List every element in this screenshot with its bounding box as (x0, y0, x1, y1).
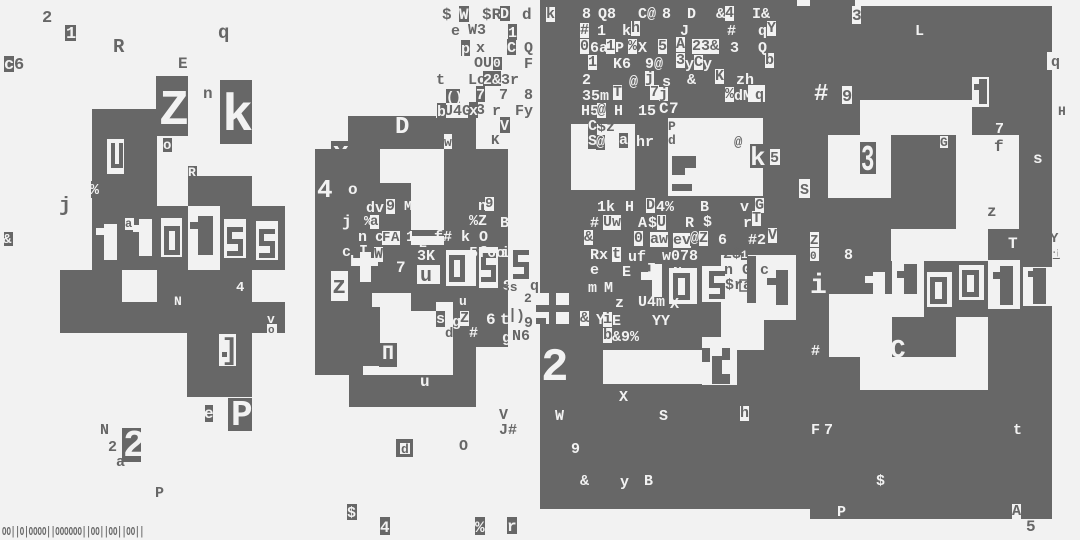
svg-text:k: k (222, 87, 253, 146)
svg-text:W3: W3 (468, 22, 486, 39)
svg-text:b: b (765, 52, 774, 69)
svg-text:i: i (501, 245, 510, 262)
svg-text:e: e (590, 262, 599, 279)
svg-text:E: E (612, 313, 621, 330)
svg-text:2: 2 (123, 425, 146, 468)
svg-text:u: u (420, 265, 432, 288)
svg-text:c: c (4, 56, 14, 75)
svg-text:8: 8 (662, 6, 671, 23)
svg-text:s: s (436, 311, 445, 328)
svg-text:j: j (342, 213, 352, 231)
svg-text:P: P (837, 504, 846, 521)
svg-text:u: u (459, 294, 467, 309)
svg-text:3: 3 (676, 52, 685, 69)
svg-text:7: 7 (650, 84, 659, 101)
svg-text:6: 6 (14, 56, 24, 75)
svg-text:&: & (710, 38, 719, 55)
svg-text:C: C (659, 100, 669, 118)
svg-text:5: 5 (770, 150, 779, 167)
svg-text:H: H (1058, 104, 1066, 119)
svg-text:F: F (811, 422, 820, 439)
svg-text:e: e (673, 232, 682, 249)
svg-text:F: F (382, 230, 390, 246)
svg-text:A: A (391, 230, 400, 246)
svg-text:N6: N6 (512, 328, 530, 345)
svg-text:u: u (420, 373, 430, 391)
svg-text:C: C (890, 335, 906, 365)
svg-text:r: r (743, 215, 752, 232)
svg-text:g: g (502, 330, 511, 347)
svg-text:@: @ (629, 74, 638, 91)
svg-text:a: a (650, 231, 659, 248)
svg-text:h: h (740, 405, 749, 422)
svg-text:d: d (522, 6, 532, 24)
svg-text:X: X (670, 296, 679, 313)
svg-text:P: P (155, 485, 164, 502)
svg-text:7: 7 (499, 87, 508, 104)
svg-text:V: V (500, 118, 509, 135)
svg-text:Z: Z (810, 233, 818, 249)
svg-text:D: D (500, 6, 509, 23)
svg-text:w: w (659, 231, 668, 248)
svg-text:OU: OU (474, 55, 492, 72)
svg-text:T: T (1008, 235, 1018, 253)
svg-text:P: P (615, 40, 624, 57)
svg-text:1: 1 (66, 25, 76, 44)
svg-text:j: j (59, 195, 71, 218)
svg-text:E: E (622, 264, 631, 281)
svg-text:3: 3 (861, 140, 874, 181)
svg-text:#: # (727, 23, 736, 40)
svg-text:i: i (810, 271, 827, 302)
svg-text:d: d (668, 133, 676, 148)
svg-text:7: 7 (669, 100, 679, 118)
svg-text:&: & (584, 229, 593, 246)
svg-text:&: & (3, 232, 12, 248)
svg-text:y: y (620, 474, 629, 491)
svg-text:A: A (1012, 503, 1021, 520)
svg-text:q: q (218, 22, 229, 44)
svg-text:X: X (619, 389, 628, 406)
svg-text:#: # (811, 343, 820, 360)
svg-text:@: @ (596, 134, 605, 151)
svg-text:B: B (644, 473, 653, 490)
svg-text:4: 4 (317, 175, 333, 205)
svg-text:T: T (613, 84, 622, 101)
svg-text:W: W (555, 408, 564, 425)
svg-text:F: F (524, 56, 533, 73)
svg-text:15: 15 (638, 103, 656, 120)
svg-text:2: 2 (582, 72, 591, 89)
svg-text:9: 9 (571, 441, 580, 458)
svg-text:d: d (401, 442, 409, 457)
svg-text:U: U (603, 214, 612, 231)
svg-text:@: @ (734, 135, 743, 151)
svg-text:Z: Z (159, 83, 189, 140)
svg-text:YY: YY (652, 313, 670, 330)
svg-text:w078: w078 (662, 248, 698, 265)
svg-text:a: a (619, 132, 628, 149)
svg-text:5: 5 (1026, 518, 1036, 536)
svg-text:z: z (987, 203, 997, 221)
svg-text:t: t (612, 246, 621, 263)
svg-text:$: $ (703, 214, 712, 231)
svg-text:N: N (100, 422, 109, 439)
svg-text:a: a (116, 454, 125, 471)
svg-text:A: A (676, 36, 685, 53)
svg-text:C: C (507, 40, 516, 57)
svg-text:7: 7 (396, 259, 406, 277)
svg-text:8: 8 (582, 6, 591, 23)
svg-text:OO||O|OOOO||OOOOOO||OO||OO||OO: OO||O|OOOO||OOOOOO||OO||OO||OO|| (2, 525, 144, 539)
svg-text:o: o (268, 325, 275, 337)
svg-text:2: 2 (541, 342, 569, 394)
svg-text:#: # (814, 81, 828, 108)
svg-text:&: & (580, 310, 589, 327)
svg-text:D: D (646, 197, 655, 214)
svg-text:S: S (659, 408, 668, 425)
svg-text:b: b (603, 327, 612, 344)
svg-text:Q: Q (524, 40, 533, 57)
svg-text:1: 1 (1051, 246, 1060, 263)
svg-text:U: U (657, 214, 666, 231)
svg-text:i: i (603, 311, 612, 328)
svg-text:%: % (475, 519, 485, 537)
svg-text:1: 1 (597, 23, 606, 40)
svg-text:7: 7 (824, 422, 833, 439)
svg-text:k: k (546, 6, 555, 23)
svg-text:1: 1 (588, 54, 597, 71)
svg-text:2: 2 (692, 38, 701, 55)
svg-text:C@: C@ (638, 6, 656, 23)
svg-text:&: & (580, 473, 589, 490)
svg-text:$: $ (876, 473, 885, 490)
svg-text:w: w (444, 135, 452, 150)
svg-text:8: 8 (524, 87, 533, 104)
svg-text:m: m (588, 280, 597, 297)
svg-text:C: C (694, 54, 703, 71)
svg-text:K6: K6 (613, 56, 631, 73)
svg-text:H: H (625, 199, 634, 216)
svg-text:3: 3 (701, 38, 710, 55)
svg-text:p: p (461, 41, 470, 58)
svg-text:4: 4 (236, 280, 244, 296)
svg-text:": " (414, 209, 423, 226)
svg-text:V: V (768, 227, 777, 244)
svg-text:K: K (715, 68, 724, 85)
svg-text:#: # (580, 22, 589, 39)
svg-text:2: 2 (524, 291, 532, 306)
svg-text:q: q (1051, 54, 1060, 71)
svg-text:s: s (1033, 150, 1043, 168)
svg-text:Π: Π (382, 343, 394, 366)
svg-text:D: D (395, 114, 409, 141)
svg-text:1: 1 (741, 250, 748, 262)
svg-text:L: L (915, 23, 924, 40)
svg-text:5: 5 (658, 38, 667, 55)
svg-text:&9%: &9% (612, 329, 640, 346)
svg-text:X: X (638, 40, 647, 57)
svg-text:0: 0 (493, 56, 501, 71)
svg-text:w: w (612, 214, 621, 231)
svg-text:%Z: %Z (469, 213, 487, 230)
svg-text:Fy: Fy (515, 103, 533, 120)
svg-text:z: z (332, 274, 346, 301)
svg-text:%: % (628, 38, 638, 55)
svg-text:S: S (800, 182, 809, 199)
svg-text:H: H (614, 103, 623, 120)
svg-text:$: $ (648, 215, 657, 232)
svg-text:n: n (203, 85, 213, 103)
svg-text:R: R (113, 36, 125, 58)
svg-text:y: y (685, 56, 694, 73)
svg-text:4: 4 (380, 519, 390, 537)
svg-text:$: $ (347, 505, 356, 522)
svg-text:9: 9 (485, 196, 493, 212)
svg-text:f#: f# (434, 229, 452, 246)
svg-text:M: M (404, 199, 412, 215)
svg-text:E: E (178, 55, 188, 73)
svg-text:q: q (758, 23, 767, 40)
svg-text:v: v (740, 199, 749, 216)
svg-text:T: T (752, 210, 761, 227)
svg-text:6: 6 (486, 311, 496, 329)
svg-text:#: # (469, 325, 478, 342)
svg-text:k: k (750, 143, 766, 173)
svg-text:W: W (374, 246, 383, 263)
svg-text:1: 1 (606, 38, 615, 55)
svg-text:O: O (459, 438, 468, 455)
svg-text:D: D (687, 6, 696, 23)
svg-text:f: f (994, 138, 1004, 156)
svg-text:N: N (174, 294, 182, 309)
svg-text:#2: #2 (748, 232, 766, 249)
svg-text:Q8: Q8 (598, 6, 616, 23)
svg-text:%: % (90, 182, 100, 199)
svg-text:J#: J# (499, 422, 517, 439)
svg-text:2$: 2$ (723, 246, 741, 263)
svg-text:9: 9 (386, 198, 395, 215)
svg-text:K: K (491, 133, 500, 149)
svg-text:@: @ (690, 230, 699, 247)
svg-text:0: 0 (810, 251, 817, 263)
svg-text:U4G: U4G (444, 103, 471, 120)
svg-text:o: o (163, 138, 171, 154)
svg-text:G: G (940, 135, 948, 150)
svg-text:e: e (204, 405, 214, 423)
svg-text:P: P (231, 395, 253, 436)
svg-text:e: e (451, 23, 460, 40)
svg-text:z: z (615, 295, 624, 312)
svg-text:Y: Y (767, 20, 776, 37)
svg-text:0: 0 (634, 230, 643, 247)
svg-text:h: h (631, 20, 640, 37)
svg-text:o: o (348, 181, 358, 199)
svg-text:3: 3 (852, 7, 862, 25)
svg-text:3: 3 (476, 102, 485, 119)
svg-text:Z: Z (460, 310, 469, 327)
svg-text:@: @ (597, 102, 606, 119)
svg-text:O: O (479, 229, 488, 246)
svg-text:ss: ss (502, 280, 518, 295)
svg-text:I: I (359, 243, 368, 260)
svg-text:B: B (500, 215, 509, 232)
svg-text:a: a (370, 214, 379, 230)
svg-text:hr: hr (636, 134, 654, 151)
svg-text:9: 9 (842, 88, 852, 107)
svg-text:t: t (1013, 422, 1022, 439)
svg-text:4: 4 (725, 5, 734, 22)
svg-text:t: t (436, 72, 445, 89)
svg-text:&: & (716, 6, 725, 23)
svg-text:r: r (507, 518, 517, 536)
svg-text:$: $ (442, 6, 452, 24)
svg-text:5f6o: 5f6o (469, 245, 505, 262)
svg-text:Y: Y (1050, 231, 1059, 247)
svg-text:&: & (687, 72, 696, 89)
svg-text:b: b (350, 254, 359, 271)
svg-text:d: d (445, 326, 453, 342)
svg-text:M: M (604, 280, 613, 297)
svg-text:q: q (755, 87, 764, 104)
svg-text:P: P (668, 119, 676, 134)
svg-text:0: 0 (580, 38, 589, 55)
svg-text:U4m: U4m (638, 294, 665, 311)
svg-text:2: 2 (42, 9, 52, 28)
svg-text:y: y (703, 56, 712, 73)
svg-text:a: a (125, 217, 132, 231)
svg-text:3: 3 (730, 40, 739, 57)
svg-text:k: k (461, 229, 470, 246)
svg-text:Z: Z (699, 230, 708, 247)
